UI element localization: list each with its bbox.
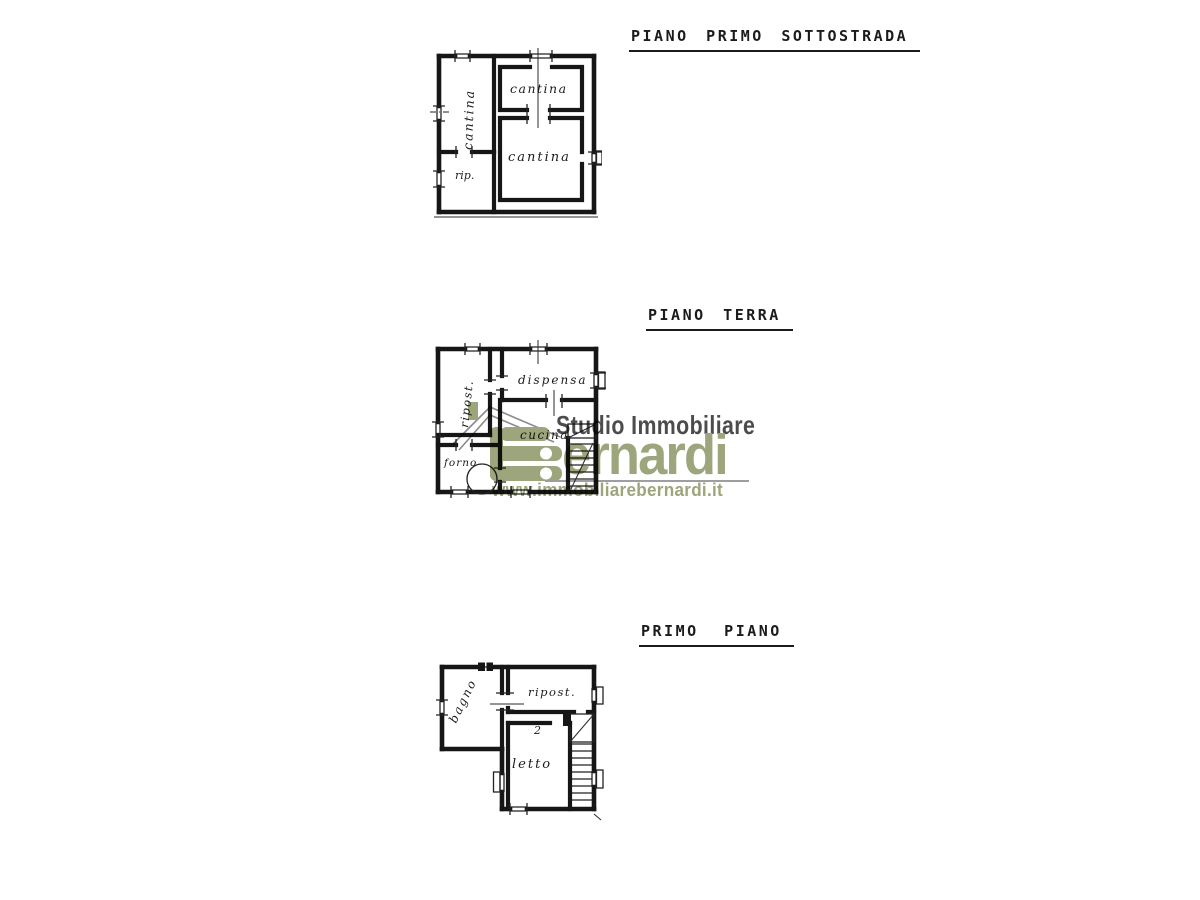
stair-annotation: 2 [533,724,541,737]
bernardi-logo-mark [450,394,570,494]
staircase [563,714,594,800]
room-label-ripost: ripost. [528,685,576,699]
scanned-floorplan-page: PIANO PRIMO SOTTOSTRADA PIANO TERRA PRIM… [0,0,1200,900]
floor-title-terra: PIANO TERRA [646,306,793,331]
room-label-dispensa: dispensa [518,373,588,387]
door-mark [487,663,494,672]
room-label-bagno: bagno [446,676,479,725]
agency-watermark: Studio Immobiliare ernardi www.immobilia… [450,394,780,506]
room-label-cantina-bottom: cantina [508,150,571,165]
floor-plan-sottostrada: cantina cantina cantina rip. [430,48,602,220]
room-label-letto: letto [512,757,552,772]
room-label-cantina-top: cantina [510,81,568,96]
bernardi-brand-text: ernardi [562,427,727,484]
room-label-rip: rip. [455,169,474,182]
floor-plan-primo: bagno ripost. letto 2 [428,658,608,828]
floor-title-sottostrada: PIANO PRIMO SOTTOSTRADA [629,27,920,52]
logo-b-notches [540,448,552,480]
website-url-text: www.immobiliarebernardi.it [492,480,723,501]
corner-tick [594,814,601,820]
door-mark [478,663,485,672]
floor-title-primo: PRIMO PIANO [639,622,794,647]
room-label-cantina-left: cantina [460,89,477,151]
